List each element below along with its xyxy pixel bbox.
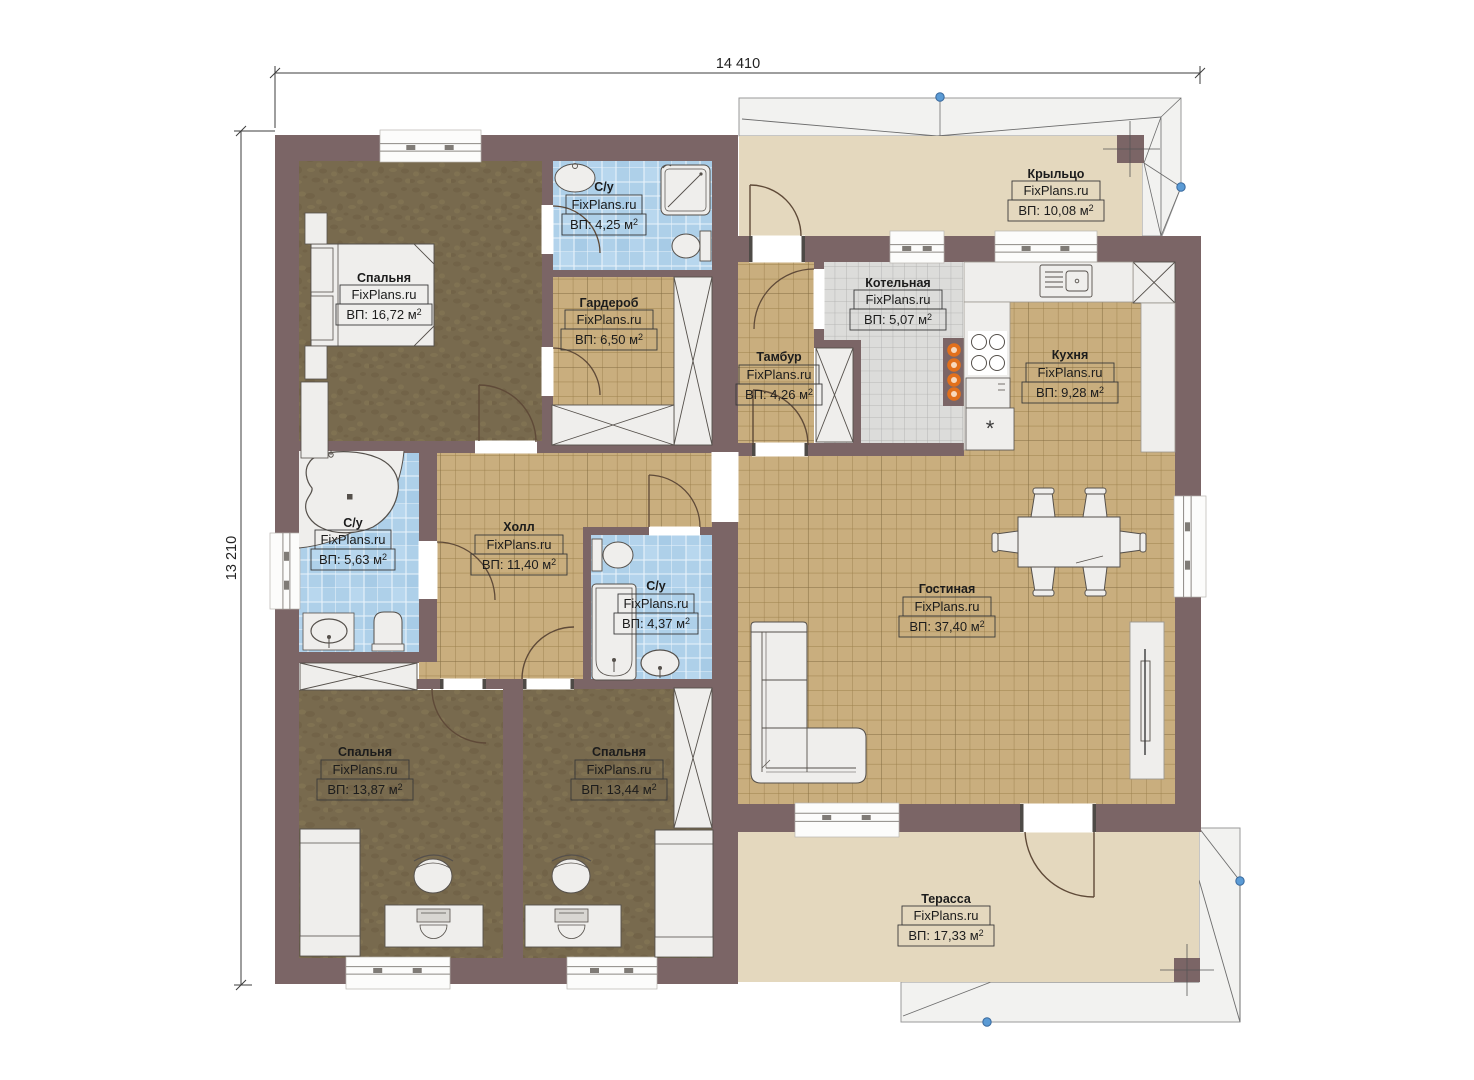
svg-text:FixPlans.ru: FixPlans.ru xyxy=(1023,183,1088,198)
svg-text:*: * xyxy=(986,416,995,441)
svg-text:ВП: 17,33 м2: ВП: 17,33 м2 xyxy=(908,928,983,943)
svg-text:ВП: 16,72 м2: ВП: 16,72 м2 xyxy=(346,307,421,322)
svg-text:ВП: 4,26 м2: ВП: 4,26 м2 xyxy=(745,387,813,402)
svg-text:Холл: Холл xyxy=(503,520,534,534)
svg-text:Спальня: Спальня xyxy=(592,745,646,759)
svg-text:ВП: 10,08 м2: ВП: 10,08 м2 xyxy=(1018,203,1093,218)
svg-text:FixPlans.ru: FixPlans.ru xyxy=(623,596,688,611)
svg-text:FixPlans.ru: FixPlans.ru xyxy=(865,292,930,307)
svg-text:Спальня: Спальня xyxy=(357,271,411,285)
svg-text:FixPlans.ru: FixPlans.ru xyxy=(571,197,636,212)
svg-text:Кухня: Кухня xyxy=(1052,348,1089,362)
svg-text:FixPlans.ru: FixPlans.ru xyxy=(1037,365,1102,380)
svg-text:ВП: 11,40 м2: ВП: 11,40 м2 xyxy=(482,557,556,572)
svg-text:Тамбур: Тамбур xyxy=(756,350,802,364)
svg-text:ВП: 37,40 м2: ВП: 37,40 м2 xyxy=(909,619,984,634)
svg-text:FixPlans.ru: FixPlans.ru xyxy=(351,287,416,302)
svg-text:Крыльцо: Крыльцо xyxy=(1028,167,1085,181)
svg-text:FixPlans.ru: FixPlans.ru xyxy=(913,908,978,923)
svg-text:ВП: 4,37 м2: ВП: 4,37 м2 xyxy=(622,616,690,631)
svg-text:FixPlans.ru: FixPlans.ru xyxy=(914,599,979,614)
svg-text:FixPlans.ru: FixPlans.ru xyxy=(746,367,811,382)
svg-text:FixPlans.ru: FixPlans.ru xyxy=(486,537,551,552)
svg-text:ВП: 6,50 м2: ВП: 6,50 м2 xyxy=(575,332,643,347)
svg-text:ВП: 5,63 м2: ВП: 5,63 м2 xyxy=(319,552,387,567)
svg-text:14 410: 14 410 xyxy=(716,56,760,72)
svg-text:С/у: С/у xyxy=(594,180,614,194)
svg-text:ВП: 5,07 м2: ВП: 5,07 м2 xyxy=(864,312,932,327)
svg-text:ВП: 9,28 м2: ВП: 9,28 м2 xyxy=(1036,385,1104,400)
svg-text:С/у: С/у xyxy=(343,516,363,530)
svg-text:FixPlans.ru: FixPlans.ru xyxy=(320,532,385,547)
svg-text:FixPlans.ru: FixPlans.ru xyxy=(586,762,651,777)
svg-text:ВП: 4,25 м2: ВП: 4,25 м2 xyxy=(570,217,638,232)
svg-text:13 210: 13 210 xyxy=(224,536,240,580)
svg-text:ВП: 13,44 м2: ВП: 13,44 м2 xyxy=(581,782,656,797)
svg-text:Котельная: Котельная xyxy=(865,276,930,290)
svg-text:С/у: С/у xyxy=(646,579,666,593)
svg-text:ВП: 13,87 м2: ВП: 13,87 м2 xyxy=(327,782,402,797)
svg-text:Спальня: Спальня xyxy=(338,745,392,759)
svg-text:Гостиная: Гостиная xyxy=(919,582,976,596)
svg-text:Терасса: Терасса xyxy=(921,892,972,906)
svg-text:Гардероб: Гардероб xyxy=(579,296,638,310)
svg-text:FixPlans.ru: FixPlans.ru xyxy=(576,312,641,327)
svg-text:FixPlans.ru: FixPlans.ru xyxy=(332,762,397,777)
